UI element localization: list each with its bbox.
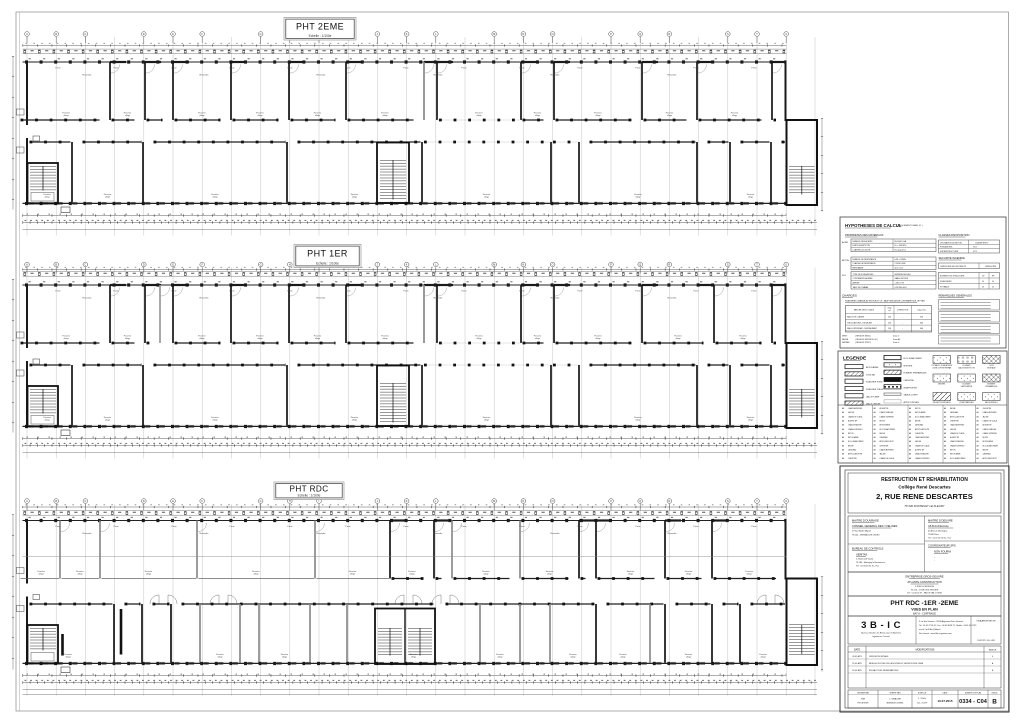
svg-text:Fenetre: Fenetre	[674, 335, 682, 338]
svg-text:Porte: Porte	[345, 525, 351, 528]
svg-text:BETON: BETON	[915, 408, 921, 410]
svg-text:VERIFIE PAR: VERIFIE PAR	[889, 691, 901, 694]
svg-text:Porte: Porte	[171, 290, 177, 293]
svg-text:Fenetre: Fenetre	[475, 112, 483, 115]
svg-text:Fenetre: Fenetre	[256, 112, 264, 115]
svg-text:Porte: Porte	[345, 290, 351, 293]
svg-text:fc28 = 25MPa: fc28 = 25MPa	[895, 259, 908, 261]
svg-text:allege: allege	[125, 115, 131, 117]
svg-text:Retombe: Retombe	[83, 532, 93, 535]
svg-text:Retombe: Retombe	[83, 297, 93, 300]
svg-text:42 Avenue Montaigne: 42 Avenue Montaigne	[928, 530, 948, 533]
svg-text:CLASSES D'EXPOSITION: CLASSES D'EXPOSITION	[939, 233, 970, 237]
svg-text:D: D	[143, 33, 145, 36]
svg-text:Echelle : 1/100e: Echelle : 1/100e	[316, 262, 339, 266]
svg-text:Fenetre: Fenetre	[482, 570, 490, 573]
svg-text:allege: allege	[732, 115, 738, 117]
svg-text:allege: allege	[535, 115, 541, 117]
svg-text:BECHE: BECHE	[915, 420, 921, 422]
svg-text:allege: allege	[64, 115, 70, 117]
svg-text:2, Montcwell Voulat: 2, Montcwell Voulat	[856, 558, 874, 561]
svg-text:allege: allege	[635, 197, 641, 199]
svg-text:I.B.B Architecture: I.B.B Architecture	[928, 524, 949, 528]
svg-text:Fenetre: Fenetre	[627, 570, 635, 573]
svg-text:allege: allege	[686, 574, 692, 576]
svg-text:3 B - I C: 3 B - I C	[861, 620, 901, 631]
svg-text:XC2: XC2	[973, 247, 977, 249]
svg-text:allege: allege	[667, 115, 673, 117]
svg-text:Porte: Porte	[229, 290, 235, 293]
svg-text:Fenetre: Fenetre	[198, 112, 206, 115]
svg-text:allege: allege	[253, 574, 259, 576]
svg-text:e-mail : be3-3bic@bbox.fr: e-mail : be3-3bic@bbox.fr	[919, 628, 941, 631]
svg-text:Fenetre: Fenetre	[745, 570, 753, 573]
svg-text:Collège René Descartes: Collège René Descartes	[898, 485, 951, 490]
svg-text:Porte: Porte	[229, 67, 235, 70]
svg-text:BETON: BETON	[880, 420, 886, 422]
svg-text:Porte: Porte	[635, 290, 641, 293]
svg-text:CHEVETRE: CHEVETRE	[950, 420, 959, 422]
svg-text:allege: allege	[66, 657, 72, 659]
svg-text:Fenetre: Fenetre	[594, 112, 602, 115]
svg-text:Retombe: Retombe	[668, 297, 678, 300]
svg-text:Zone 0: Zone 0	[893, 342, 900, 344]
svg-text:DESSINE PAR: DESSINE PAR	[857, 691, 870, 694]
svg-text:Site Internet : www.3bic-ingen: Site Internet : www.3bic-ingenierie.com	[919, 632, 952, 635]
svg-text:CLASSE DE RESISTANCE: CLASSE DE RESISTANCE	[853, 262, 877, 265]
svg-text:N: N	[523, 33, 525, 36]
svg-text:allege: allege	[484, 197, 490, 199]
svg-text:A RAPPORTER: A RAPPORTER	[904, 386, 918, 389]
svg-text:Fenetre: Fenetre	[256, 335, 264, 338]
svg-text:MODIFICATIONS: MODIFICATIONS	[916, 648, 935, 651]
svg-text:allege: allege	[382, 115, 388, 117]
svg-text:DALLES SUR PLOTS: DALLES SUR PLOTS	[958, 366, 975, 369]
svg-text:150: 150	[888, 317, 891, 319]
svg-text:allege: allege	[484, 420, 490, 422]
svg-text:Porte: Porte	[171, 67, 177, 70]
svg-text:allege: allege	[476, 338, 482, 340]
svg-text:Fenetre: Fenetre	[483, 416, 491, 419]
svg-text:MAITRE D'OEUVRE: MAITRE D'OEUVRE	[928, 519, 953, 523]
svg-text:M: M	[493, 500, 495, 503]
svg-text:2, RUE RENE DESCARTES: 2, RUE RENE DESCARTES	[876, 492, 973, 501]
svg-text:allege: allege	[628, 574, 634, 576]
svg-text:Fenetre: Fenetre	[76, 570, 84, 573]
svg-text:Porte: Porte	[751, 290, 757, 293]
svg-text:Porte: Porte	[171, 525, 177, 528]
svg-text:( REGLES NV65 ): ( REGLES NV65 )	[855, 336, 871, 338]
svg-text:allege: allege	[411, 657, 417, 659]
svg-text:PROPRIETES DES MATERIAUX: PROPRIETES DES MATERIAUX	[845, 233, 884, 237]
svg-text:78 330 FONTENAY LE FLEURY: 78 330 FONTENAY LE FLEURY	[904, 504, 945, 508]
svg-text:Fenetre: Fenetre	[594, 335, 602, 338]
svg-text:ZONE COF EN PREPAR: ZONE COF EN PREPAR	[932, 366, 952, 369]
svg-text:250: 250	[920, 317, 923, 319]
svg-text:Fenetre: Fenetre	[569, 653, 577, 656]
svg-text:allege: allege	[483, 574, 489, 576]
svg-text:m2: m2	[888, 310, 890, 312]
svg-text:allege: allege	[748, 197, 754, 199]
svg-text:Porte: Porte	[287, 290, 293, 293]
svg-text:Porte: Porte	[403, 525, 409, 528]
svg-text:Fenetre: Fenetre	[747, 193, 755, 196]
svg-text:INGENIEUR CONSEIL: INGENIEUR CONSEIL	[886, 703, 903, 705]
svg-text:allege: allege	[212, 420, 218, 422]
svg-text:H: H	[289, 500, 291, 503]
svg-text:PREFABRIQUE: PREFABRIQUE	[985, 385, 998, 388]
svg-text:POTEAUX: POTEAUX	[940, 285, 950, 288]
svg-text:05.01.APS: 05.01.APS	[852, 655, 862, 658]
svg-text:PLANCHERS: PLANCHERS	[940, 280, 952, 283]
svg-text:Porte: Porte	[635, 67, 641, 70]
svg-text:1h: 1h	[982, 281, 984, 283]
svg-text:TYPE DE FONDATIONS: TYPE DE FONDATIONS	[853, 273, 875, 276]
svg-text:Fenetre: Fenetre	[198, 335, 206, 338]
svg-text:Retombe: Retombe	[83, 74, 93, 77]
svg-text:Fenetre: Fenetre	[475, 335, 483, 338]
svg-text:Fenetre: Fenetre	[62, 335, 70, 338]
svg-text:C25/30 CEM: C25/30 CEM	[895, 263, 906, 265]
svg-text:Retombe: Retombe	[434, 74, 444, 77]
svg-text:COORDINATEUR SPS: COORDINATEUR SPS	[928, 544, 956, 548]
svg-text:CONTRAINTE ADMISE: CONTRAINTE ADMISE	[853, 277, 874, 280]
svg-text:Fenetre: Fenetre	[381, 335, 389, 338]
svg-text:SALLE INTERNAT - RESTAURANT: SALLE INTERNAT - RESTAURANT	[847, 327, 878, 330]
svg-text:Porte: Porte	[577, 290, 583, 293]
svg-text:allege: allege	[257, 338, 263, 340]
svg-text:allege: allege	[352, 420, 358, 422]
svg-text:Retombe: Retombe	[200, 74, 210, 77]
svg-text:CLASSE EXPO: CLASSE EXPO	[975, 241, 989, 244]
svg-text:Fenetre: Fenetre	[747, 416, 755, 419]
svg-text:Tél : 01.61.77.56.42 - Fax : 0: Tél : 01.61.77.56.42 - Fax : 09.81.38.98…	[919, 625, 976, 627]
svg-text:BETON: BETON	[983, 437, 989, 439]
svg-text:DALLE A PEDLO: DALLE A PEDLO	[985, 401, 999, 404]
svg-text:D: D	[143, 500, 145, 503]
svg-text:78 000 - VERSAILLES CEDEX: 78 000 - VERSAILLES CEDEX	[852, 534, 880, 537]
svg-text:Porte: Porte	[693, 290, 699, 293]
svg-text:allege: allege	[282, 657, 288, 659]
svg-text:B: B	[992, 699, 997, 706]
svg-text:( REGLES PS92 ): ( REGLES PS92 )	[855, 342, 871, 344]
svg-text:CHARGES: CHARGES	[842, 294, 857, 298]
svg-text:0334 - C04: 0334 - C04	[959, 699, 988, 705]
svg-text:allege: allege	[199, 338, 205, 340]
svg-text:Fenetre: Fenetre	[410, 653, 418, 656]
svg-text:MONTAGE: MONTAGE	[987, 366, 996, 369]
svg-text:PHT RDC -1ER -2EME: PHT RDC -1ER -2EME	[890, 600, 959, 607]
svg-text:allege: allege	[350, 574, 356, 576]
svg-text:NATURE DES LOCAUX: NATURE DES LOCAUX	[854, 309, 875, 312]
svg-text:allege: allege	[64, 338, 70, 340]
svg-text:ELEMENT DE STRUCTURE: ELEMENT DE STRUCTURE	[940, 276, 965, 278]
svg-text:PLANCHERS CHARGE AU 'EN VUE ET: PLANCHERS CHARGE AU 'EN VUE ET CF - SAUF…	[845, 300, 925, 303]
svg-text:Q: Q	[639, 264, 641, 267]
svg-text:Tél : 01.30.37.97 - FAX 09 VAL: Tél : 01.30.37.97 - FAX 09 VAL D'OISE	[907, 592, 942, 595]
svg-text:PLANCHER CREUX: PLANCHER CREUX	[866, 388, 884, 391]
svg-text:CHEVETRE: CHEVETRE	[915, 433, 924, 435]
svg-text:U: U	[785, 264, 787, 267]
svg-text:Ingénieurs Conseil: Ingénieurs Conseil	[872, 635, 890, 638]
svg-text:SEISME: SEISME	[842, 342, 850, 344]
svg-text:INDICE: INDICE	[989, 649, 997, 651]
svg-text:Porte: Porte	[55, 290, 61, 293]
svg-text:Fenetre: Fenetre	[739, 335, 747, 338]
svg-text:M: M	[493, 264, 495, 267]
svg-text:75008 Paris: 75008 Paris	[928, 534, 939, 536]
svg-text:UTILISATION DU BETON: UTILISATION DU BETON	[940, 241, 962, 244]
svg-text:CATEGORIE SELON PRINCIP: CATEGORIE SELON PRINCIP	[940, 265, 967, 268]
svg-text:Porte: Porte	[751, 67, 757, 70]
svg-text:Fenetre: Fenetre	[349, 570, 357, 573]
svg-text:Fenetre: Fenetre	[64, 653, 72, 656]
svg-text:U: U	[785, 500, 787, 503]
svg-text:Porte: Porte	[635, 525, 641, 528]
svg-text:SUPERSTRUCTURE: SUPERSTRUCTURE	[940, 251, 959, 253]
svg-text:ACIER: ACIER	[842, 241, 849, 244]
svg-text:Porte: Porte	[113, 290, 119, 293]
svg-text:C: C	[85, 33, 87, 36]
svg-text:ASSISE: ASSISE	[853, 282, 861, 285]
svg-text:DATE: DATE	[943, 691, 948, 694]
svg-text:allege: allege	[748, 420, 754, 422]
svg-text:Porte: Porte	[519, 525, 525, 528]
svg-text:Fenetre: Fenetre	[216, 653, 224, 656]
svg-text:BAT A - COFFRAGE: BAT A - COFFRAGE	[913, 612, 936, 615]
svg-text:150: 150	[888, 322, 891, 324]
svg-text:C'H'ETOPF - BG - HDR: C'H'ETOPF - BG - HDR	[977, 640, 996, 642]
svg-text:CONSEIL GENERAL DES YVELINES: CONSEIL GENERAL DES YVELINES	[852, 524, 898, 528]
svg-text:Fenetre: Fenetre	[408, 570, 416, 573]
svg-text:NEIGE: NEIGE	[842, 339, 849, 341]
svg-text:Porte: Porte	[287, 525, 293, 528]
svg-text:APPUI PLINTHES: APPUI PLINTHES	[904, 401, 920, 404]
svg-text:1h: 1h	[992, 281, 994, 283]
svg-text:Fenetre: Fenetre	[759, 653, 767, 656]
svg-text:BETON: BETON	[842, 260, 849, 262]
svg-text:Retombe: Retombe	[434, 532, 444, 535]
svg-text:1 / 100e: 1 / 100e	[918, 698, 927, 700]
svg-text:PLANCHER PLEIN: PLANCHER PLEIN	[866, 381, 883, 384]
svg-text:Fenetre: Fenetre	[314, 335, 322, 338]
svg-text:INDICE: INDICE	[992, 692, 999, 694]
svg-text:Fenetre: Fenetre	[685, 653, 693, 656]
svg-text:allege: allege	[382, 338, 388, 340]
svg-text:Retombe: Retombe	[200, 297, 210, 300]
svg-text:SALLE DE CLASSE: SALLE DE CLASSE	[847, 316, 865, 319]
svg-text:allege: allege	[39, 574, 45, 576]
svg-text:allege: allege	[740, 338, 746, 340]
svg-text:Echelle : 1/100e: Echelle : 1/100e	[298, 494, 321, 498]
svg-text:Porte: Porte	[577, 67, 583, 70]
svg-text:VOILE BA: VOILE BA	[866, 373, 875, 376]
svg-text:Fenetre: Fenetre	[37, 570, 45, 573]
svg-text:C: C	[85, 500, 87, 503]
svg-text:allege: allege	[45, 197, 51, 199]
svg-text:CHEVETRE: CHEVETRE	[880, 445, 889, 447]
svg-text:allege: allege	[217, 657, 223, 659]
svg-text:Fenetre: Fenetre	[666, 112, 674, 115]
svg-text:CHEVETRE: CHEVETRE	[983, 408, 992, 410]
svg-text:Fenetre: Fenetre	[145, 570, 153, 573]
svg-text:PHT 1ER: PHT 1ER	[307, 249, 348, 259]
svg-text:allege: allege	[315, 338, 321, 340]
svg-text:PROJETEUR: PROJETEUR	[858, 703, 870, 705]
svg-text:CORRECTION: CORRECTION	[897, 310, 909, 312]
svg-text:Fenetre: Fenetre	[634, 193, 642, 196]
svg-text:Porte: Porte	[751, 525, 757, 528]
svg-text:CIRCULATIONS - ESCALIER: CIRCULATIONS - ESCALIER	[847, 321, 873, 324]
svg-text:10.07.2015: 10.07.2015	[937, 699, 952, 703]
svg-text:ELEMENT PREFABRIQUE: ELEMENT PREFABRIQUE	[904, 372, 928, 375]
svg-text:Porte: Porte	[461, 525, 467, 528]
svg-text:Bureau d'études de Béton pour: Bureau d'études de Béton pour le Bâtimen…	[861, 632, 901, 635]
svg-text:allege: allege	[352, 197, 358, 199]
svg-text:allege: allege	[77, 574, 83, 576]
svg-text:G: G	[260, 500, 262, 503]
svg-text:SABLE MOYEN: SABLE MOYEN	[895, 277, 909, 280]
svg-text:VENTILATEUR: VENTILATEUR	[961, 385, 973, 388]
svg-text:Porte: Porte	[345, 67, 351, 70]
svg-text:Fenetre: Fenetre	[619, 653, 627, 656]
svg-text:HYPOTHESES DE CALCUL: HYPOTHESES DE CALCUL	[845, 223, 902, 228]
svg-text:Porte: Porte	[403, 67, 409, 70]
svg-text:XC1: XC1	[973, 251, 977, 253]
svg-text:VERITAS: VERITAS	[856, 553, 868, 557]
svg-text:allege: allege	[105, 197, 111, 199]
svg-text:U: U	[785, 33, 787, 36]
svg-text:allege: allege	[45, 420, 51, 422]
svg-text:allege: allege	[105, 420, 111, 422]
svg-text:R: R	[669, 264, 671, 267]
svg-text:CATEGORIE: CATEGORIE	[985, 265, 997, 268]
svg-text:Retombe: Retombe	[434, 297, 444, 300]
svg-text:EN HAUT DES RESERVATIONS: EN HAUT DES RESERVATIONS	[869, 669, 899, 672]
svg-text:Fenetre: Fenetre	[43, 193, 51, 196]
svg-text:0.28 MPa ELS: 0.28 MPa ELS	[895, 287, 908, 289]
svg-text:FE E500 / HA: FE E500 / HA	[895, 240, 907, 243]
svg-text:allege: allege	[257, 115, 263, 117]
svg-text:VENT: VENT	[842, 336, 848, 338]
svg-text:Porte: Porte	[403, 290, 409, 293]
svg-text:allege: allege	[199, 115, 205, 117]
svg-text:N: N	[523, 264, 525, 267]
svg-text:allege: allege	[595, 338, 601, 340]
svg-text:1:25 - 2/25 FF: 1:25 - 2/25 FF	[917, 703, 928, 705]
svg-text:Fenetre: Fenetre	[314, 112, 322, 115]
svg-text:Retombe: Retombe	[668, 532, 678, 535]
svg-text:BLOC A MACONNER: BLOC A MACONNER	[904, 357, 923, 360]
svg-text:Zone A1: Zone A1	[893, 338, 901, 341]
svg-text:( REGLEMENTS BAEL 91 ): ( REGLEMENTS BAEL 91 )	[897, 224, 923, 227]
svg-text:DEL ART DOES DALLE: DEL ART DOES DALLE	[933, 401, 952, 404]
svg-text:ECHELLE: ECHELLE	[918, 692, 927, 694]
svg-text:Porte: Porte	[577, 525, 583, 528]
svg-text:allege: allege	[620, 657, 626, 659]
svg-text:BECHE: BECHE	[880, 433, 886, 435]
svg-text:Fenetre: Fenetre	[252, 570, 260, 573]
svg-text:DIFFUSION INITIALE: DIFFUSION INITIALE	[869, 655, 889, 658]
svg-text:Porte: Porte	[693, 525, 699, 528]
svg-text:R: R	[669, 500, 671, 503]
svg-text:95 610 - 2 RUE LES GROUES: 95 610 - 2 RUE LES GROUES	[911, 589, 939, 591]
svg-text:Echelle : 1/100e: Echelle : 1/100e	[309, 34, 332, 38]
svg-text:allege: allege	[547, 574, 553, 576]
svg-text:Fenetre: Fenetre	[43, 416, 51, 419]
svg-text:REMARQUES GENERALES: REMARQUES GENERALES	[939, 294, 973, 298]
svg-text:BUREAU DE CONTROLE: BUREAU DE CONTROLE	[852, 547, 884, 551]
svg-text:( REGLES N84 MOD 96 ): ( REGLES N84 MOD 96 )	[855, 339, 878, 341]
svg-text:400: 400	[920, 322, 923, 324]
svg-text:O: O	[552, 500, 554, 503]
svg-text:allege: allege	[125, 338, 131, 340]
svg-text:D: D	[143, 264, 145, 267]
svg-text:Fenetre: Fenetre	[211, 416, 219, 419]
svg-text:Porte: Porte	[229, 525, 235, 528]
svg-text:CHEVETRE: CHEVETRE	[848, 458, 857, 460]
svg-text:Retombe: Retombe	[317, 74, 327, 77]
svg-text:1h: 1h	[992, 286, 994, 288]
svg-text:SECURITE INCENDIE: SECURITE INCENDIE	[939, 256, 965, 260]
svg-text:400: 400	[920, 328, 923, 330]
svg-text:VUES EN PLAN: VUES EN PLAN	[911, 608, 938, 612]
svg-text:BETON: BETON	[950, 450, 956, 452]
svg-text:Porte: Porte	[693, 67, 699, 70]
svg-text:Porte: Porte	[55, 67, 61, 70]
svg-text:NUANCE DES ACIERS: NUANCE DES ACIERS	[853, 240, 874, 243]
svg-text:BETON: BETON	[848, 433, 854, 435]
svg-text:Tél : 01.47.23.55.55 - Fax: Tél : 01.47.23.55.55 - Fax	[928, 538, 951, 540]
svg-text:2 RUE DU BUISSON: 2 RUE DU BUISSON	[915, 586, 934, 588]
svg-text:allege: allege	[635, 420, 641, 422]
svg-text:Porte: Porte	[519, 290, 525, 293]
svg-text:NUMERO DE PLAN: NUMERO DE PLAN	[965, 691, 982, 694]
svg-text:3cm / 5cm: 3cm / 5cm	[895, 267, 904, 269]
svg-text:RESTRUCTION ET REHABILITATION: RESTRUCTION ET REHABILITATION	[881, 477, 968, 483]
svg-text:Fenetre: Fenetre	[124, 335, 132, 338]
svg-text:Fenetre: Fenetre	[534, 112, 542, 115]
svg-text:BECHE: BECHE	[983, 450, 989, 452]
svg-text:Q: Q	[639, 500, 641, 503]
svg-text:Porte: Porte	[461, 290, 467, 293]
svg-text:ENROBAGE: ENROBAGE	[853, 266, 864, 269]
svg-text:allege: allege	[761, 657, 767, 659]
svg-text:Porte: Porte	[287, 67, 293, 70]
svg-text:BECHES: BECHES	[938, 384, 946, 386]
svg-text:CLASSE DUCTILITE: CLASSE DUCTILITE	[853, 248, 871, 251]
svg-text:Porte: Porte	[55, 525, 61, 528]
svg-text:Fenetre: Fenetre	[731, 112, 739, 115]
svg-text:PHT 2EME: PHT 2EME	[296, 21, 344, 31]
svg-text:ATLANTE CONSTRUCTION: ATLANTE CONSTRUCTION	[907, 580, 941, 584]
svg-text:78 180 - Montigny le Bretonneu: 78 180 - Montigny le Bretonneux	[856, 561, 885, 564]
svg-text:Retombe: Retombe	[551, 532, 561, 535]
svg-text:1h: 1h	[982, 286, 984, 288]
svg-text:Retombe: Retombe	[317, 532, 327, 535]
svg-text:Fenetre: Fenetre	[634, 416, 642, 419]
svg-text:25.05.APD: 25.05.APD	[852, 662, 862, 665]
svg-text:O: O	[552, 264, 554, 267]
svg-text:allege: allege	[315, 115, 321, 117]
svg-text:C: C	[85, 264, 87, 267]
svg-text:H: H	[289, 264, 291, 267]
svg-text:BECHE: BECHE	[848, 445, 854, 447]
svg-text:Retombe: Retombe	[551, 74, 561, 77]
svg-text:Retombe: Retombe	[317, 297, 327, 300]
svg-text:Fenetre: Fenetre	[483, 193, 491, 196]
svg-text:Fenetre: Fenetre	[351, 416, 359, 419]
